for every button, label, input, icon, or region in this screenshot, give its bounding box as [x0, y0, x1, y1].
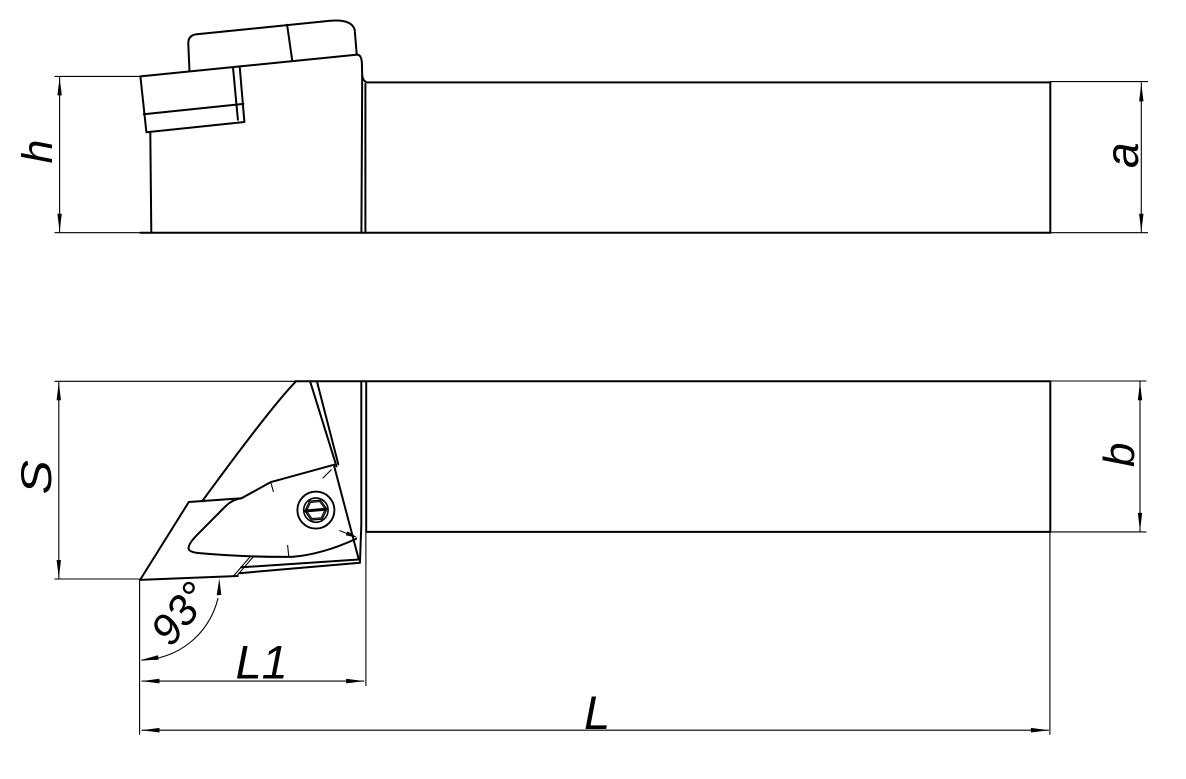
svg-text:h: h	[14, 140, 62, 164]
svg-text:a: a	[1096, 142, 1148, 168]
svg-text:S: S	[13, 460, 61, 495]
svg-text:b: b	[1095, 443, 1144, 467]
svg-text:L1: L1	[236, 636, 288, 689]
svg-text:L: L	[584, 686, 610, 739]
